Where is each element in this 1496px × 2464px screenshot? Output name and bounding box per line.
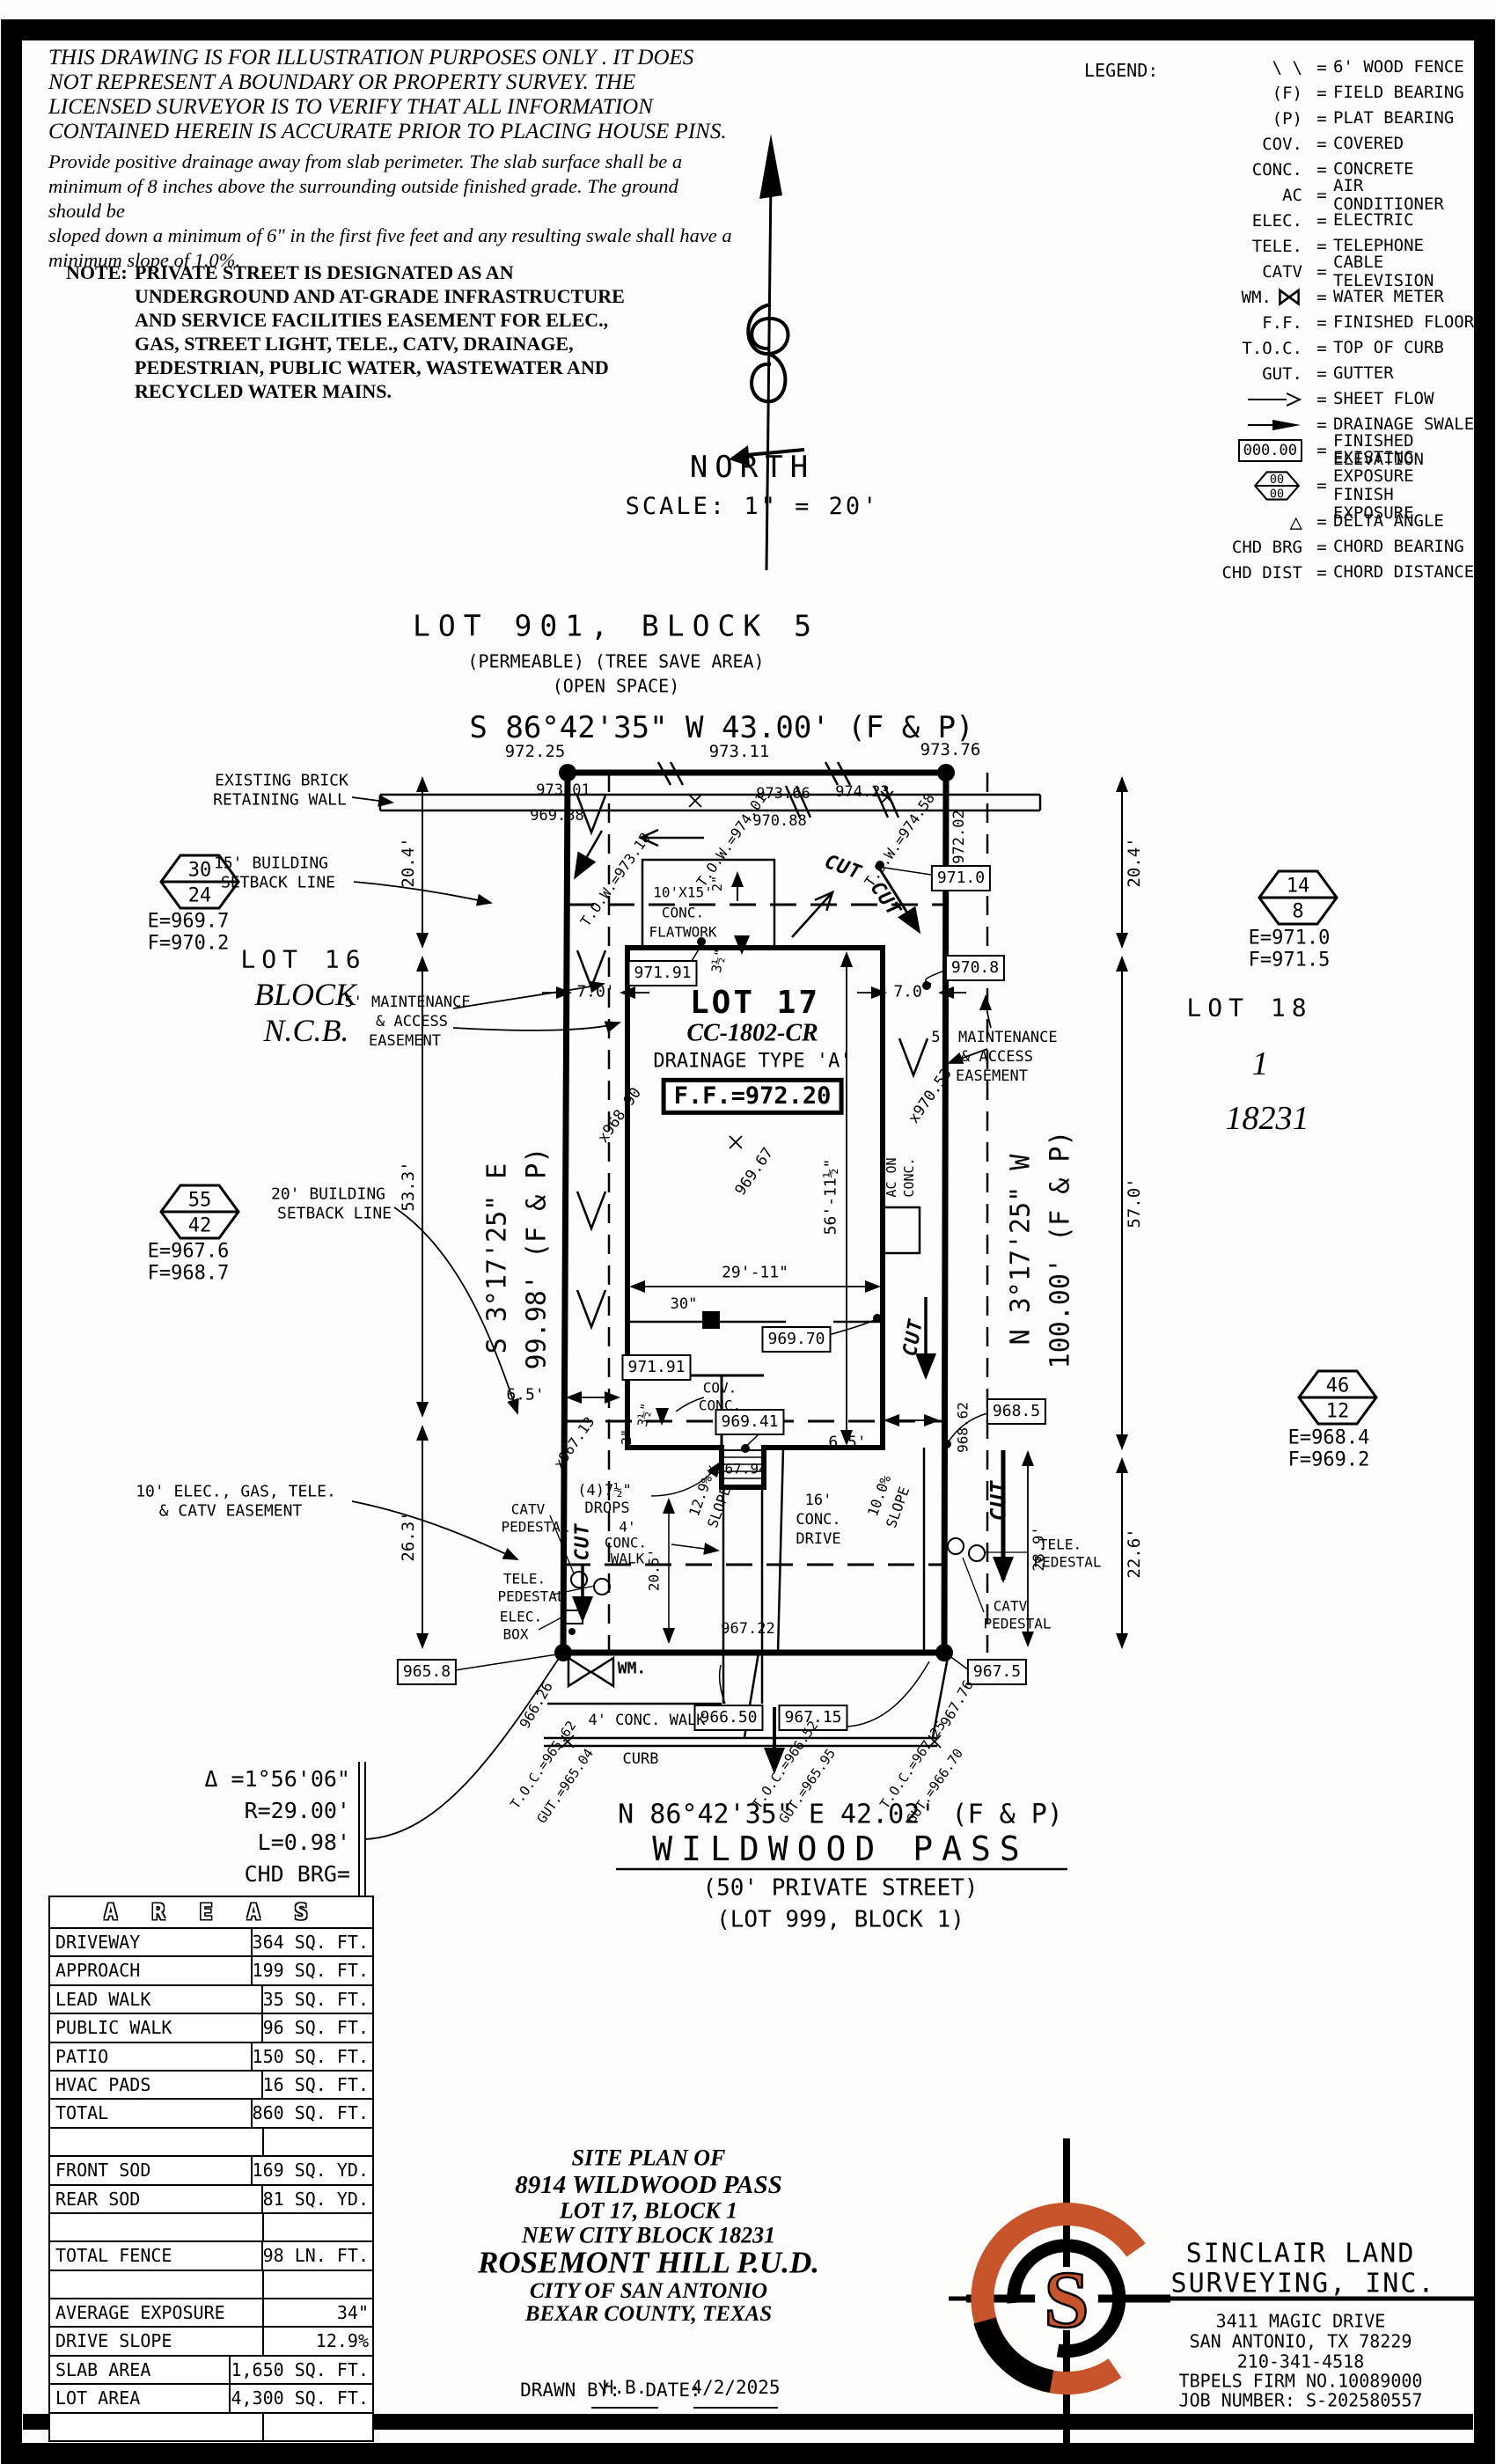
note-line: PRIVATE STREET IS DESIGNATED AS AN [135, 260, 700, 284]
flatwork-label: FLATWORK [649, 926, 716, 941]
surveyor-name: SINCLAIR LAND [1186, 2240, 1416, 2268]
legend-desc: 6' WOOD FENCE [1333, 58, 1482, 77]
catv-pedestal-label: CATV [511, 1503, 546, 1518]
equals: = [1310, 538, 1333, 557]
spot-elev-box: 971.91 [621, 1354, 691, 1381]
dim-7ft: 7.0' [893, 985, 931, 1001]
areas-row-value: 98 LN. FT. [263, 2242, 372, 2269]
grade-elev-box: 971.0 [931, 865, 991, 891]
areas-row-value: 35 SQ. FT. [263, 1986, 372, 2013]
exposure-existing: E=968.4 [1288, 1427, 1370, 1448]
legend-title: LEGEND: [1084, 60, 1158, 81]
legend-row: ELEC.=ELECTRIC [1170, 208, 1482, 233]
scale-label: SCALE: 1" = 20' [626, 495, 880, 519]
legend-row: CATV=CABLE TELEVISION [1170, 259, 1482, 284]
lot17-title: LOT 17 [690, 986, 820, 1020]
legend-row: F.F.=FINISHED FLOOR [1170, 310, 1482, 335]
spot-elev-box: 969.41 [715, 1409, 784, 1435]
toc-sym: T.O.C. [1170, 339, 1310, 358]
areas-row-value: 81 SQ. YD. [263, 2186, 372, 2212]
north-boundary-bearing: S 86°42'35" W 43.00' (F & P) [469, 713, 973, 744]
east-boundary-bearing: N 3°17'25" W [1007, 1155, 1035, 1346]
west-boundary-bearing: S 3°17'25" E [483, 1163, 511, 1354]
areas-row-label: HVAC PADS [50, 2072, 263, 2098]
areas-row: HVAC PADS 16 SQ. FT. [50, 2072, 372, 2100]
spot-elev: 970.88 [752, 814, 806, 830]
chd-brg-sym: CHD BRG [1170, 538, 1310, 557]
areas-row-value [264, 2271, 372, 2298]
covered-sym: COV. [1170, 135, 1310, 154]
maint-easement-label: EASEMENT [369, 1034, 441, 1050]
spot-elev: 973.01 [536, 783, 590, 799]
areas-row-value: 364 SQ. FT. [253, 1929, 372, 1955]
areas-row: LOT AREA 4,300 SQ. FT. [50, 2385, 372, 2413]
maint-easement-label: 5' MAINTENANCE [344, 995, 470, 1011]
areas-row-value: 12.9% [264, 2328, 372, 2354]
legend-desc: PLAT BEARING [1333, 109, 1482, 128]
areas-row-label: DRIVEWAY [50, 1929, 253, 1955]
drainage-type: DRAINAGE TYPE 'A' [653, 1051, 851, 1071]
areas-row-value [264, 2414, 372, 2440]
exposure-finish: F=971.5 [1249, 950, 1331, 970]
surveyor-address: SAN ANTONIO, TX 78229 [1190, 2333, 1412, 2351]
areas-row-label [50, 2271, 264, 2298]
drawn-by-value: H.B. [603, 2378, 648, 2397]
legend-desc: FINISHED FLOOR [1333, 313, 1482, 332]
equals: = [1310, 313, 1333, 333]
legend-desc: GUTTER [1333, 364, 1482, 383]
cov-conc-label: COV. [703, 1382, 737, 1397]
street-type: (50' PRIVATE STREET) [702, 1876, 978, 1900]
areas-row-value [264, 2214, 372, 2240]
surveyor-name: SURVEYING, INC. [1171, 2270, 1436, 2298]
disclaimer-line: NOT REPRESENT A BOUNDARY OR PROPERTY SUR… [48, 70, 735, 95]
tele-pedestal-label: PEDESTAL [1033, 1556, 1101, 1571]
maint-easement-label: & ACCESS [961, 1050, 1033, 1066]
catv-sym: CATV [1170, 262, 1310, 282]
equals: = [1310, 512, 1333, 532]
setback15-label: SETBACK LINE [221, 876, 335, 892]
field-bearing-sym: (F) [1170, 84, 1310, 103]
drainage-note-line: sloped down a minimum of 6" in the first… [48, 224, 735, 248]
areas-row-label: TOTAL FENCE [50, 2242, 263, 2269]
gutter-sym: GUT. [1170, 364, 1310, 384]
drainage-note-line: Provide positive drainage away from slab… [48, 150, 735, 174]
legend-desc: AIR CONDITIONER [1333, 177, 1482, 214]
areas-row-label: LOT AREA [50, 2385, 231, 2411]
exposure-existing: E=969.7 [148, 911, 230, 931]
note-label: NOTE: [66, 260, 128, 284]
spot-elev: 967.22 [721, 1622, 774, 1638]
drops-label: (4)7½" [577, 1484, 631, 1500]
site-plan-sheet: S THIS DRAWING IS FOR ILLUSTRATION PURPO… [0, 0, 1496, 2464]
retaining-wall-label: EXISTING BRICK [215, 774, 348, 790]
electric-sym: ELEC. [1170, 211, 1310, 231]
lot901-sub1: (PERMEABLE) (TREE SAVE AREA) [467, 653, 764, 671]
equals: = [1310, 339, 1333, 358]
spot-elev: 968.62 [957, 1402, 972, 1453]
areas-row-label: APPROACH [50, 1957, 253, 1984]
areas-row: PATIO 150 SQ. FT. [50, 2043, 372, 2072]
spot-elev: 972.02 [952, 810, 968, 863]
drainage-note-line: minimum of 8 inches above the surroundin… [48, 174, 735, 224]
areas-row-label: FRONT SOD [50, 2157, 253, 2183]
tele-pedestal-label: TELE. [503, 1573, 546, 1588]
dim-29-11: 29'-11" [722, 1265, 788, 1282]
disclaimer-line: THIS DRAWING IS FOR ILLUSTRATION PURPOSE… [48, 46, 735, 70]
equals: = [1310, 262, 1333, 282]
spot-elev-box: 971.91 [627, 960, 697, 986]
legend-desc: TOP OF CURB [1333, 339, 1482, 357]
lot18-label: LOT 18 [1186, 994, 1312, 1020]
surveyor-job-number: JOB NUMBER: S-202580557 [1179, 2392, 1423, 2410]
cut-label: CUT [987, 1480, 1009, 1521]
areas-row-label [50, 2214, 264, 2240]
areas-row: TOTAL 860 SQ. FT. [50, 2100, 372, 2128]
areas-row-label: PUBLIC WALK [50, 2014, 263, 2041]
titleblock-line: BEXAR COUNTY, TEXAS [525, 2303, 772, 2326]
catv-pedestal-label: PEDESTAL [983, 1617, 1051, 1632]
areas-row: AVERAGE EXPOSURE 34" [50, 2299, 372, 2328]
legend-row: =SHEET FLOW [1170, 386, 1482, 412]
areas-row: DRIVEWAY 364 SQ. FT. [50, 1929, 372, 1957]
exposure-finish: F=968.7 [148, 1263, 230, 1283]
elec-box-label: BOX [503, 1628, 529, 1643]
areas-row-value: 169 SQ. YD. [253, 2157, 372, 2183]
legend-row: GUT.=GUTTER [1170, 361, 1482, 386]
spot-elev-box: 967.5 [967, 1659, 1027, 1685]
tree-tag: 42 [188, 1215, 212, 1236]
tele-pedestal-label: TELE. [1039, 1538, 1082, 1553]
titleblock-line: LOT 17, BLOCK 1 [560, 2198, 737, 2222]
note-line: RECYCLED WATER MAINS. [135, 379, 700, 403]
titleblock-line: 8914 WILDWOOD PASS [515, 2172, 781, 2198]
svg-text:00: 00 [1270, 473, 1284, 487]
exposure-finish: F=970.2 [148, 933, 230, 953]
areas-row-value [264, 2129, 372, 2155]
spot-elev: 969.88 [530, 809, 583, 825]
tree-tag: 14 [1287, 876, 1310, 896]
lot901-sub2: (OPEN SPACE) [553, 678, 680, 696]
equals: = [1310, 84, 1333, 103]
dim-20-4: 20.4' [1126, 837, 1144, 887]
surveyor-phone: 210-341-4518 [1237, 2353, 1365, 2372]
areas-row-value: 150 SQ. FT. [253, 2043, 372, 2070]
tree-tag: 55 [188, 1190, 212, 1210]
legend-desc: WATER METER [1333, 288, 1482, 306]
west-boundary-distance: 99.98' (F & P) [523, 1148, 551, 1370]
curve-delta: Δ =1°56'06" [204, 1768, 350, 1791]
disclaimer-line: CONTAINED HEREIN IS ACCURATE PRIOR TO PL… [48, 120, 735, 144]
legend-row: 0000=EXISTING EXPOSUREFINISH EXPOSURE [1170, 463, 1482, 509]
equals: = [1310, 160, 1333, 180]
lead-walk-label: CONC. [605, 1536, 647, 1551]
legend-desc: CABLE TELEVISION [1333, 253, 1482, 290]
note-line: AND SERVICE FACILITIES EASEMENT FOR ELEC… [135, 308, 700, 332]
areas-row-label: REAR SOD [50, 2186, 263, 2212]
areas-row-label [50, 2414, 264, 2440]
drainage-swale-icon [1248, 418, 1302, 432]
plan-code: CC-1802-CR [686, 1020, 818, 1045]
equals: = [1310, 476, 1333, 495]
titleblock-line: SITE PLAN OF [572, 2145, 726, 2169]
titleblock-pud: ROSEMONT HILL P.U.D. [478, 2248, 819, 2280]
legend-row: T.O.C.=TOP OF CURB [1170, 335, 1482, 361]
legend-row: \ \=6' WOOD FENCE [1170, 55, 1482, 80]
areas-row: TOTAL FENCE 98 LN. FT. [50, 2242, 372, 2270]
areas-row-label: AVERAGE EXPOSURE [50, 2299, 264, 2326]
equals: = [1310, 237, 1333, 256]
svg-text:S: S [1044, 2255, 1089, 2344]
utility-easement-label: 10' ELEC., GAS, TELE. [136, 1485, 336, 1501]
areas-row: REAR SOD 81 SQ. YD. [50, 2186, 372, 2214]
tree-tag: 46 [1326, 1375, 1350, 1396]
legend-desc: CHORD DISTANCE [1333, 563, 1482, 582]
street-name: WILDWOOD PASS [652, 1832, 1028, 1867]
spot-elev-box: 970.8 [945, 955, 1005, 981]
elec-box-label: ELEC. [500, 1610, 542, 1625]
dim-20-4: 20.4' [400, 837, 418, 887]
ncb-number: 18231 [1226, 1102, 1309, 1137]
spot-elev: x967.94 [708, 1463, 766, 1478]
north-label: NORTH [690, 452, 815, 484]
legend-row: (F)=FIELD BEARING [1170, 80, 1482, 106]
utility-easement-label: & CATV EASEMENT [159, 1504, 303, 1521]
maint-easement-label: 5' MAINTENANCE [931, 1030, 1057, 1046]
equals: = [1310, 364, 1333, 384]
titleblock-line: NEW CITY BLOCK 18231 [522, 2223, 775, 2247]
legend-desc: EXISTING EXPOSURE [1333, 449, 1482, 486]
dim-57-0: 57.0' [1126, 1177, 1144, 1228]
tree-tag: 12 [1326, 1401, 1350, 1421]
areas-row-label: SLAB AREA [50, 2357, 231, 2383]
areas-row-label: TOTAL [50, 2100, 253, 2126]
exposure-existing: E=971.0 [1249, 928, 1331, 948]
block-number: 1 [1252, 1047, 1269, 1082]
areas-row-value: 860 SQ. FT. [253, 2100, 372, 2126]
svg-text:00: 00 [1270, 488, 1284, 501]
dim-6-5: 6.5' [506, 1388, 544, 1404]
private-street-note: NOTE: PRIVATE STREET IS DESIGNATED AS AN… [66, 260, 700, 403]
disclaimer-line: LICENSED SURVEYOR IS TO VERIFY THAT ALL … [48, 95, 735, 120]
exposure-existing: E=967.6 [148, 1241, 230, 1261]
titleblock-line: CITY OF SAN ANTONIO [530, 2280, 767, 2303]
maint-easement-label: & ACCESS [376, 1015, 448, 1030]
spot-elev: 973.76 [920, 742, 981, 759]
spot-elev: 972.25 [505, 744, 566, 761]
block-label: BLOCK [254, 979, 356, 1012]
curb-label: CURB [623, 1752, 659, 1768]
wood-fence-icon: \ \ [1170, 58, 1310, 77]
legend-desc: FIELD BEARING [1333, 84, 1482, 102]
water-meter-icon: ⋈ [1276, 289, 1302, 306]
legend: LEGEND: \ \=6' WOOD FENCE (F)=FIELD BEAR… [1075, 55, 1482, 585]
areas-row: SLAB AREA 1,650 SQ. FT. [50, 2357, 372, 2385]
equals: = [1310, 58, 1333, 77]
curve-radius: R=29.00' [245, 1800, 350, 1822]
drive-label: DRIVE [796, 1532, 840, 1548]
curve-length: L=0.98' [258, 1831, 350, 1854]
spot-elev: 974.23 [835, 785, 889, 801]
flatwork-label: 10'X15' [653, 886, 712, 901]
areas-row: FRONT SOD 169 SQ. YD. [50, 2157, 372, 2185]
spot-elev-box: 969.70 [761, 1326, 831, 1353]
areas-row-label: PATIO [50, 2043, 253, 2070]
equals: = [1310, 135, 1333, 154]
lead-walk-label: 4' [619, 1521, 635, 1536]
dim-2in: 2" [711, 876, 725, 891]
lot901-title: LOT 901, BLOCK 5 [413, 612, 819, 642]
drive-label: CONC. [796, 1513, 840, 1529]
areas-row-value: 1,650 SQ. FT. [231, 2357, 372, 2383]
areas-row-value: 199 SQ. FT. [253, 1957, 372, 1984]
note-line: UNDERGROUND AND AT-GRADE INFRASTRUCTURE [135, 284, 700, 308]
drops-label: DROPS [584, 1501, 629, 1517]
areas-row-value: 34" [264, 2299, 372, 2326]
water-meter-symbol [568, 1658, 613, 1686]
surveyor-address: 3411 MAGIC DRIVE [1216, 2313, 1386, 2331]
legend-desc: DELTA ANGLE [1333, 512, 1482, 531]
plat-bearing-sym: (P) [1170, 109, 1310, 128]
dim-2in: 2" [620, 1429, 634, 1445]
areas-row-label: LEAD WALK [50, 1986, 263, 2013]
equals: = [1310, 211, 1333, 231]
note-line: GAS, STREET LIGHT, TELE., CATV, DRAINAGE… [135, 332, 700, 356]
finished-elevation-icon: 000.00 [1238, 439, 1302, 462]
drive-label: 16' [805, 1493, 832, 1509]
dim-7ft: 7.0' [576, 985, 614, 1001]
retaining-wall-label: RETAINING WALL [213, 793, 347, 810]
legend-row: CHD BRG=CHORD BEARING [1170, 534, 1482, 560]
ac-label: AC ON [885, 1157, 899, 1197]
areas-row [50, 2271, 372, 2299]
equals: = [1310, 390, 1333, 409]
cut-label: CUT [572, 1523, 592, 1561]
maint-easement-label: EASEMENT [956, 1069, 1028, 1085]
telephone-sym: TELE. [1170, 237, 1310, 256]
ac-label: CONC. [903, 1157, 917, 1197]
areas-row-label [50, 2129, 264, 2155]
areas-row [50, 2214, 372, 2242]
dim-20-5: 20.5' [648, 1549, 663, 1591]
ac-sym: AC [1170, 186, 1310, 205]
areas-row: PUBLIC WALK 96 SQ. FT. [50, 2014, 372, 2042]
equals: = [1310, 563, 1333, 583]
areas-row-label: DRIVE SLOPE [50, 2328, 264, 2354]
areas-row-value: 4,300 SQ. FT. [231, 2385, 372, 2411]
dim-22-6: 22.6' [1126, 1528, 1144, 1578]
dim-30in: 30" [671, 1297, 698, 1313]
disclaimer-block: THIS DRAWING IS FOR ILLUSTRATION PURPOSE… [48, 46, 735, 273]
dim-56-11: 56'-11½" [824, 1159, 840, 1236]
note-line: PEDESTRIAN, PUBLIC WATER, WASTEWATER AND [135, 356, 700, 379]
spot-elev-box: 965.8 [397, 1659, 457, 1685]
delta-angle-icon: △ [1170, 510, 1310, 534]
conc-walk-label: 4' CONC. WALK [588, 1713, 705, 1729]
areas-row-value: 16 SQ. FT. [263, 2072, 372, 2098]
setback20-label: 20' BUILDING [271, 1187, 385, 1204]
equals: = [1310, 415, 1333, 435]
dim-26-3: 26.3' [400, 1511, 418, 1561]
areas-row: LEAD WALK 35 SQ. FT. [50, 1986, 372, 2014]
catv-pedestal-label: PEDESTAL [501, 1521, 568, 1536]
legend-row: WM.⋈=WATER METER [1170, 284, 1482, 310]
lead-walk-label: WALK [611, 1552, 645, 1567]
spot-elev-box: 968.5 [986, 1398, 1046, 1425]
concrete-sym: CONC. [1170, 160, 1310, 180]
areas-row: DRIVE SLOPE 12.9% [50, 2328, 372, 2356]
dim-6-5: 6.5' [828, 1435, 866, 1452]
dim-53-3: 53.3' [400, 1161, 418, 1211]
south-boundary-bearing: N 86°42'35" E 42.02' (F & P) [618, 1800, 1063, 1829]
setback15-label: 15' BUILDING [214, 856, 328, 873]
ff-sym: F.F. [1170, 313, 1310, 333]
wm-label: WM. [618, 1661, 647, 1678]
exposure-hexagon-icon: 0000 [1251, 467, 1302, 504]
tree-tag: 24 [188, 885, 212, 906]
legend-desc: COVERED [1333, 135, 1482, 153]
flatwork-label: CONC. [662, 906, 704, 921]
legend-row: △=DELTA ANGLE [1170, 509, 1482, 534]
areas-row [50, 2129, 372, 2157]
legend-desc: SHEET FLOW [1333, 390, 1482, 408]
tree-tag: 30 [188, 860, 212, 880]
areas-row-value: 96 SQ. FT. [263, 2014, 372, 2041]
tree-tag: 8 [1292, 901, 1303, 921]
setback20-label: SETBACK LINE [277, 1206, 392, 1223]
areas-row: APPROACH 199 SQ. FT. [50, 1957, 372, 1985]
areas-row [50, 2414, 372, 2440]
legend-desc: ELECTRIC [1333, 211, 1482, 230]
east-boundary-distance: 100.00' (F & P) [1046, 1131, 1074, 1369]
lot16-label: LOT 16 [240, 946, 366, 972]
equals: = [1310, 109, 1333, 128]
legend-row: CHD DIST=CHORD DISTANCE [1170, 560, 1482, 585]
equals: = [1310, 441, 1333, 460]
curve-chord-bearing: CHD BRG= [245, 1863, 350, 1886]
surveyor-firm: TBPELS FIRM NO.10089000 [1179, 2372, 1423, 2391]
exposure-finish: F=969.2 [1288, 1449, 1370, 1470]
date-value: 4/2/2025 [691, 2378, 780, 2397]
legend-row: COV.=COVERED [1170, 131, 1482, 157]
equals: = [1310, 288, 1333, 307]
catv-pedestal-label: CATV [994, 1600, 1028, 1615]
areas-table: A R E A S DRIVEWAY 364 SQ. FT. APPROACH … [48, 1896, 374, 2442]
legend-desc: CHORD BEARING [1333, 538, 1482, 556]
spot-elev: 973.11 [709, 744, 770, 761]
sheet-flow-icon [1248, 392, 1302, 407]
wm-abbr: WM. [1242, 288, 1272, 307]
areas-title: A R E A S [50, 1897, 372, 1929]
legend-row: AC=AIR CONDITIONER [1170, 182, 1482, 208]
finished-floor-box: F.F.=972.20 [662, 1078, 844, 1115]
street-lot: (LOT 999, BLOCK 1) [716, 1908, 964, 1932]
equals: = [1310, 186, 1333, 205]
legend-row: (P)=PLAT BEARING [1170, 106, 1482, 131]
chd-dist-sym: CHD DIST [1170, 563, 1310, 583]
tele-pedestal-label: PEDESTAL [497, 1590, 565, 1605]
ncb-label: N.C.B. [263, 1015, 348, 1048]
